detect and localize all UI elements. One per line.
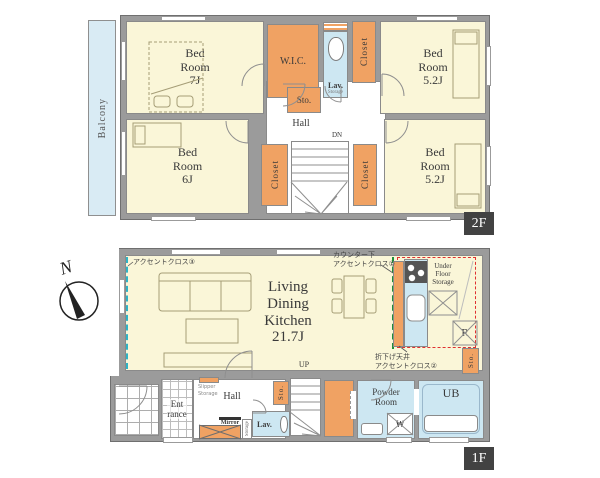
wic-label: W.I.C. bbox=[280, 56, 306, 67]
storage-small-label: Storage bbox=[245, 421, 250, 436]
accent-teal-dash bbox=[126, 257, 128, 369]
badge-1f-label: 1F bbox=[472, 451, 487, 467]
window bbox=[406, 216, 451, 221]
slipper-storage-box bbox=[199, 377, 219, 383]
porch bbox=[114, 384, 159, 436]
room-bedroom-52-bottom: Bed Room 5.2J bbox=[384, 119, 486, 214]
window bbox=[486, 146, 491, 186]
sto-hall-label: Sto. bbox=[277, 385, 285, 400]
room-closet-top: Closet bbox=[352, 21, 376, 83]
room-closet-right: Closet bbox=[353, 144, 377, 206]
toilet-icon bbox=[328, 37, 344, 61]
bedroom-6j-label: Bed Room 6J bbox=[173, 146, 202, 186]
hall-2f-label: Hall bbox=[271, 118, 331, 129]
room-sto-kitchen: Sto. bbox=[462, 348, 479, 374]
window bbox=[416, 16, 458, 21]
badge-1f: 1F bbox=[464, 447, 494, 470]
sto-kitchen-label: Sto. bbox=[467, 353, 475, 368]
closet-left-label: Closet bbox=[270, 160, 280, 189]
washer-box: W bbox=[387, 413, 413, 435]
lav-2f-storage-label: Storage bbox=[328, 90, 343, 95]
room-entrance: Ent rance bbox=[161, 379, 193, 439]
ub-door bbox=[414, 389, 419, 415]
balcony-label: Balcony bbox=[97, 98, 108, 138]
compass-n-label: N bbox=[56, 256, 75, 279]
bathtub bbox=[424, 415, 478, 432]
bedroom-52-top-label: Bed Room 5.2J bbox=[418, 47, 447, 87]
powder-sink bbox=[361, 423, 383, 435]
kitchen-counter-front bbox=[393, 261, 404, 347]
window bbox=[161, 16, 206, 21]
ldk-label: Living Dining Kitchen 21.7J bbox=[228, 279, 348, 346]
room-sto-hall: Sto. bbox=[273, 381, 289, 405]
accent-cloth-3-label: アクセントクロス③ bbox=[133, 258, 243, 267]
window bbox=[276, 249, 321, 255]
room-closet-left: Closet bbox=[261, 144, 288, 206]
window bbox=[429, 437, 469, 443]
stairs-2f bbox=[291, 141, 349, 214]
entrance-door bbox=[163, 437, 193, 443]
window bbox=[171, 249, 221, 255]
storage-small: Storage bbox=[242, 419, 252, 439]
closet-right-label: Closet bbox=[360, 160, 370, 189]
slipper-storage-label: Slipper Storage bbox=[198, 384, 218, 397]
accent-cloth-1-label: カウンター下 アクセントクロス① bbox=[333, 251, 403, 269]
pantry-door bbox=[350, 391, 356, 419]
toilet-icon bbox=[280, 416, 288, 433]
floor-2-plan: Bed Room 7J W.I.C. Lav. Storage Closet B… bbox=[120, 15, 490, 220]
exterior-notch bbox=[110, 248, 119, 376]
compass-icon: N bbox=[48, 252, 110, 334]
floor-plan-canvas: Balcony Bed Room 7J W.I.C. Lav. Storage … bbox=[0, 0, 600, 478]
room-lav-1f: Lav. bbox=[252, 411, 290, 437]
room-lav-2f: Lav. Storage bbox=[323, 31, 348, 98]
floor-1-plan: Living Dining Kitchen 21.7J Under Floor … bbox=[110, 248, 490, 442]
balcony: Balcony bbox=[88, 20, 116, 216]
washer-label: W bbox=[396, 419, 405, 429]
room-bedroom-7j: Bed Room 7J bbox=[126, 21, 264, 114]
badge-2f: 2F bbox=[464, 212, 494, 235]
badge-2f-label: 2F bbox=[472, 216, 487, 232]
stairs-1f bbox=[290, 378, 321, 436]
lav-shelf-2f bbox=[323, 22, 348, 31]
window bbox=[119, 279, 125, 314]
up-label: UP bbox=[289, 361, 319, 370]
room-bedroom-52-top: Bed Room 5.2J bbox=[380, 21, 486, 114]
lav-2f-label: Lav. bbox=[328, 81, 343, 90]
entrance-label: Ent rance bbox=[167, 399, 186, 419]
window bbox=[386, 437, 412, 443]
refrigerator-label: R bbox=[461, 327, 468, 339]
powder-room-label: Powder Room bbox=[372, 387, 400, 407]
accent-cloth-2-label: 折下げ天井 アクセントクロス② bbox=[375, 353, 453, 371]
closet-top-label: Closet bbox=[359, 37, 369, 66]
window bbox=[121, 131, 126, 176]
window bbox=[486, 46, 491, 86]
under-floor-storage-label: Under Floor Storage bbox=[417, 263, 469, 286]
window bbox=[151, 216, 196, 221]
shoe-storage-box bbox=[199, 425, 241, 439]
window bbox=[121, 41, 126, 81]
refrigerator-box: R bbox=[453, 321, 477, 345]
room-bedroom-6j: Bed Room 6J bbox=[126, 119, 249, 214]
sto-2f-label: Sto. bbox=[297, 95, 311, 105]
bedroom-7j-label: Bed Room 7J bbox=[180, 47, 209, 87]
lav-1f-label: Lav. bbox=[257, 420, 272, 429]
bedroom-52-bottom-label: Bed Room 5.2J bbox=[420, 146, 449, 186]
room-sto-2f: Sto. bbox=[287, 87, 321, 113]
dn-label: DN bbox=[325, 132, 349, 140]
